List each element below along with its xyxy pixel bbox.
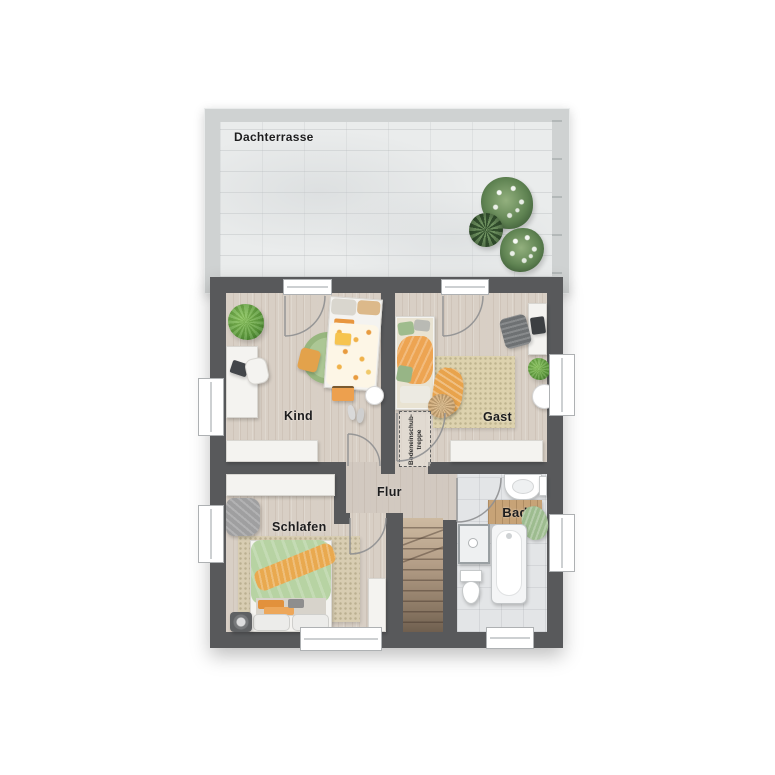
kind-bed-blanket <box>335 332 352 345</box>
gast-label: Gast <box>483 410 512 424</box>
floor-plan-page: Dachterrasse Kind <box>0 0 775 775</box>
flur-label: Flur <box>377 485 402 499</box>
wall-gast-bad <box>428 462 547 474</box>
schlafen-cabinet <box>368 578 386 632</box>
kind-plant-icon <box>228 304 264 340</box>
window-gast-east <box>549 354 575 416</box>
terrace-label: Dachterrasse <box>234 130 314 144</box>
kind-side-table <box>365 386 384 405</box>
gast-plant-icon <box>528 358 550 380</box>
shower-drain <box>468 538 478 548</box>
schlafen-speaker <box>230 612 252 632</box>
terrace-door-gast <box>441 279 489 295</box>
kind-bed-pillow <box>357 300 381 316</box>
kind-bed-duvet <box>326 322 379 388</box>
schlafen-label: Schlafen <box>272 520 327 534</box>
kind-dresser <box>226 440 318 462</box>
schlafen-wardrobe <box>226 474 335 496</box>
gast-sideboard <box>450 440 543 462</box>
attic-ladder-label: Bodeneinschub- treppe <box>408 414 423 465</box>
gast-bed-pillow-green <box>396 365 414 383</box>
window-kind-west <box>198 378 224 436</box>
kind-bed <box>324 296 383 391</box>
towel-radiator <box>539 476 547 496</box>
kind-gift-box <box>332 386 354 401</box>
gast-laptop <box>530 316 546 335</box>
wall-kind-schlafen <box>226 462 346 474</box>
gast-bed-linen <box>400 386 430 403</box>
gast-bed-pillow-green <box>397 321 415 336</box>
wall-schlafen-stair <box>386 513 403 632</box>
schlafen-laundry-chair <box>226 498 260 536</box>
wall-stair-bad <box>443 520 457 632</box>
bathtub-basin <box>496 530 522 596</box>
sink-basin <box>512 479 534 494</box>
gast-pouf <box>428 394 455 418</box>
schlafen-bench-box <box>288 599 304 608</box>
gast-bed-pillow-gray <box>413 319 430 332</box>
wall-kind-gast <box>381 293 395 474</box>
bathtub-faucet <box>506 533 512 539</box>
window-schlafen-south <box>300 627 382 651</box>
terrace-door-kind <box>283 279 332 295</box>
window-schlafen-west <box>198 505 224 563</box>
wall-schlafen-flur <box>334 513 350 524</box>
terrace-railing-ticks <box>552 120 562 278</box>
wall-schlafen-flur <box>334 474 346 513</box>
attic-ladder-box: Bodeneinschub- treppe <box>399 411 431 467</box>
kind-label: Kind <box>284 409 313 423</box>
terrace-plant-icon <box>469 213 503 247</box>
staircase <box>403 518 443 632</box>
window-bad-south <box>486 627 534 649</box>
window-bad-east <box>549 514 575 572</box>
schlafen-pillow <box>253 614 290 631</box>
kind-bed-pillow <box>331 298 357 316</box>
